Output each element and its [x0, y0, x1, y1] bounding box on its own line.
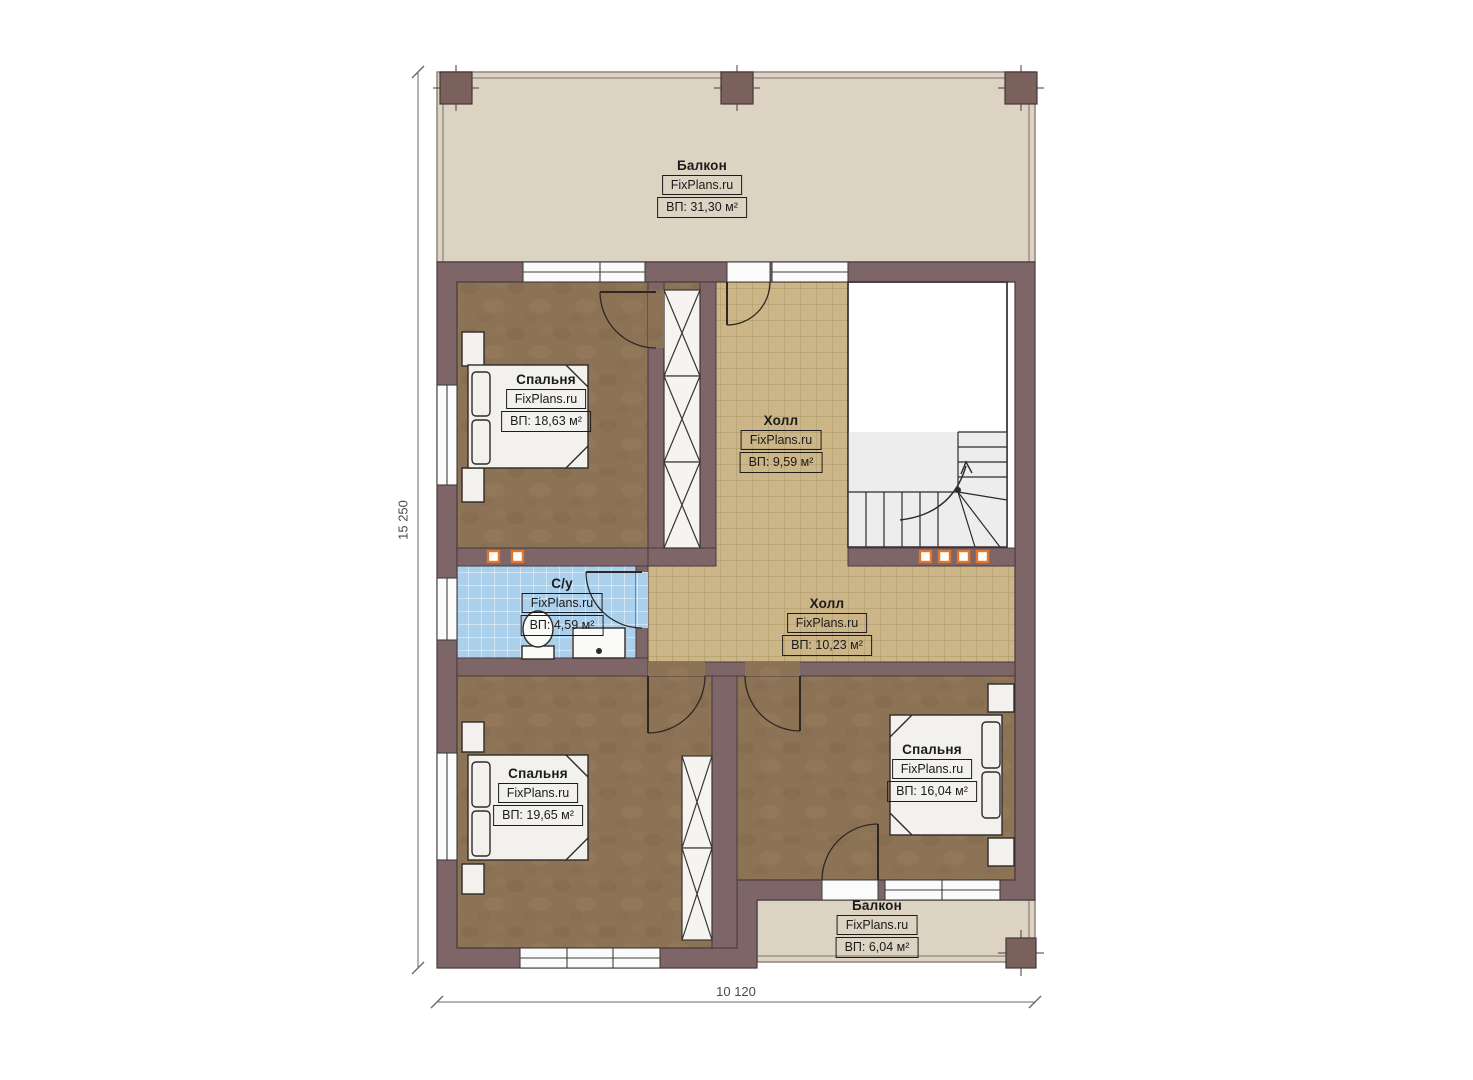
- room-label-balcony-bottom: Балкон FixPlans.ru ВП: 6,04 м²: [836, 898, 919, 958]
- room-label-bedroom-right: Спальня FixPlans.ru ВП: 16,04 м²: [887, 742, 977, 802]
- watermark-box: FixPlans.ru: [741, 430, 822, 450]
- window-bottom-right-bedroom: [885, 880, 1000, 900]
- area-box: ВП: 4,59 м²: [521, 615, 604, 635]
- room-name: Холл: [810, 596, 845, 611]
- room-label-bathroom: С/у FixPlans.ru ВП: 4,59 м²: [521, 576, 604, 636]
- window-left-bedroom-bottom: [437, 753, 457, 860]
- area-box: ВП: 18,63 м²: [501, 411, 591, 431]
- room-name: Холл: [764, 413, 799, 428]
- room-name: С/у: [551, 576, 573, 591]
- window-top-hall: [772, 262, 848, 282]
- room-label-hall-lower: Холл FixPlans.ru ВП: 10,23 м²: [782, 596, 872, 656]
- room-name: Спальня: [516, 372, 576, 387]
- room-name: Спальня: [902, 742, 962, 757]
- area-box: ВП: 6,04 м²: [836, 937, 919, 957]
- watermark-box: FixPlans.ru: [837, 915, 918, 935]
- room-name: Спальня: [508, 766, 568, 781]
- room-name: Балкон: [852, 898, 902, 913]
- dimension-width-label: 10 120: [716, 984, 756, 999]
- watermark-box: FixPlans.ru: [506, 389, 587, 409]
- watermark-box: FixPlans.ru: [787, 613, 868, 633]
- watermark-box: FixPlans.ru: [498, 783, 579, 803]
- column-top-left: [433, 65, 479, 111]
- window-left-bedroom-top: [437, 385, 457, 485]
- room-name: Балкон: [677, 158, 727, 173]
- window-bottom-bedroom: [520, 948, 660, 968]
- watermark-box: FixPlans.ru: [522, 593, 603, 613]
- watermark-box: FixPlans.ru: [662, 175, 743, 195]
- area-box: ВП: 9,59 м²: [740, 452, 823, 472]
- vent-shaft-lower: [682, 756, 712, 940]
- area-box: ВП: 31,30 м²: [657, 197, 747, 217]
- window-left-bathroom: [437, 578, 457, 640]
- room-label-bedroom-bottom-left: Спальня FixPlans.ru ВП: 19,65 м²: [493, 766, 583, 826]
- watermark-box: FixPlans.ru: [892, 759, 973, 779]
- area-box: ВП: 10,23 м²: [782, 635, 872, 655]
- window-top-bedroom: [523, 262, 645, 282]
- room-label-balcony-top: Балкон FixPlans.ru ВП: 31,30 м²: [657, 158, 747, 218]
- floor-plan-page: Балкон FixPlans.ru ВП: 31,30 м² Спальня …: [0, 0, 1473, 1080]
- area-box: ВП: 19,65 м²: [493, 805, 583, 825]
- room-label-bedroom-top-left: Спальня FixPlans.ru ВП: 18,63 м²: [501, 372, 591, 432]
- column-top-right: [998, 65, 1044, 111]
- vent-shaft-upper: [664, 290, 700, 548]
- column-top-middle: [714, 65, 760, 111]
- area-box: ВП: 16,04 м²: [887, 781, 977, 801]
- dimension-height-label: 15 250: [396, 500, 411, 540]
- room-label-hall-upper: Холл FixPlans.ru ВП: 9,59 м²: [740, 413, 823, 473]
